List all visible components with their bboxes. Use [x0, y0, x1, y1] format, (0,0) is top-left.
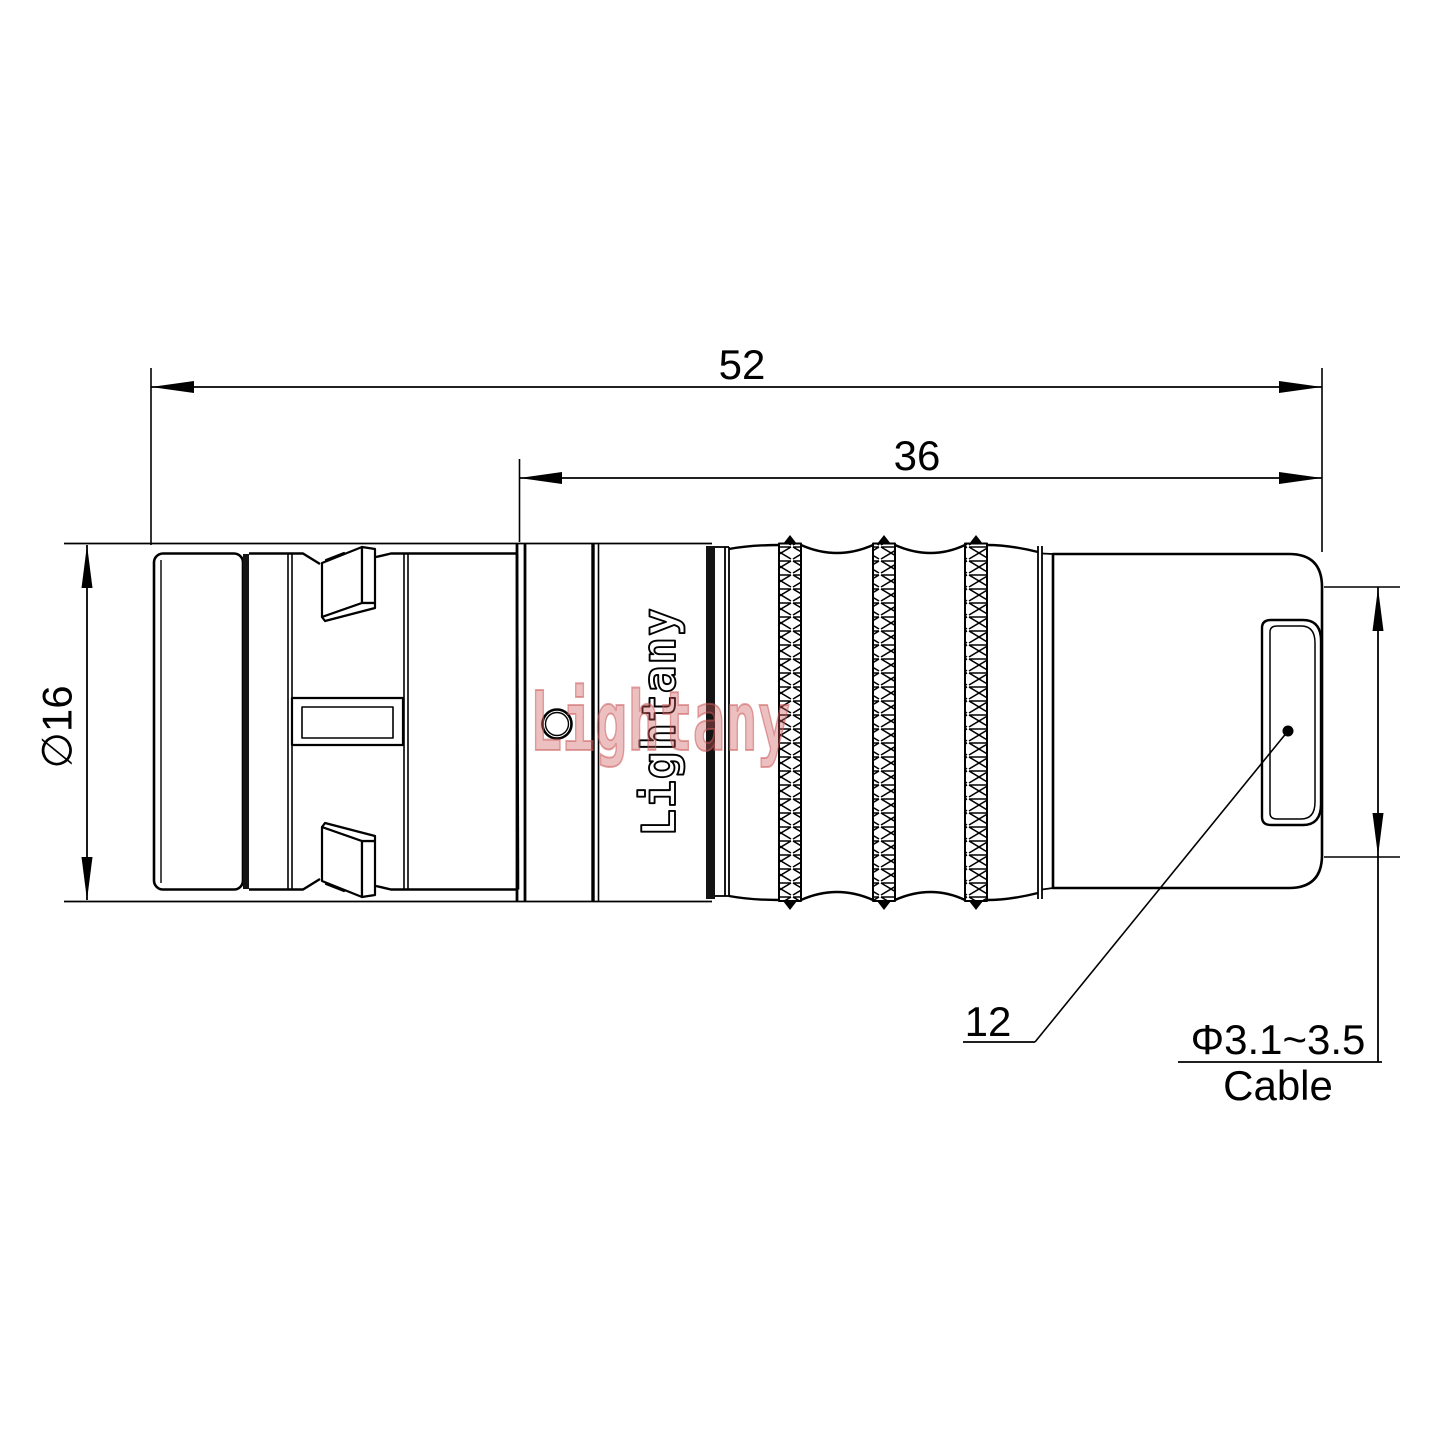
cable-range-label: Φ3.1~3.5: [1191, 1016, 1366, 1063]
dim-shell-diameter-label: ∅16: [34, 685, 81, 768]
dim-boot-diameter: [1324, 587, 1400, 1062]
connector-technical-drawing: Lightany: [0, 0, 1440, 1440]
dim-shell-diameter: ∅16: [34, 545, 93, 900]
dim-overall-length: 52: [151, 341, 1322, 552]
lower-bayonet-key: [322, 823, 375, 897]
brand-watermark: Lightany: [530, 676, 791, 770]
dim-overall-length-label: 52: [719, 341, 766, 388]
knurl-band: [965, 535, 987, 910]
knurl-band: [873, 535, 895, 910]
upper-bayonet-key: [322, 547, 375, 621]
cable-word-label: Cable: [1223, 1062, 1333, 1109]
dim-front-length: 36: [520, 432, 1323, 542]
front-shell-cap: [154, 554, 249, 890]
knurl-bands: [779, 535, 987, 910]
rear-collar-lines: [1038, 546, 1053, 899]
front-shell-slot-section: [249, 547, 518, 897]
dim-front-length-label: 36: [894, 432, 941, 479]
dim-boot-diameter-label: 12: [965, 998, 1012, 1045]
callout-cable-range: Φ3.1~3.5 Cable: [1178, 1016, 1382, 1109]
latch-window: [292, 698, 403, 745]
cable-boot: [1262, 620, 1321, 825]
technical-drawing-page: Lightany: [0, 0, 1440, 1440]
